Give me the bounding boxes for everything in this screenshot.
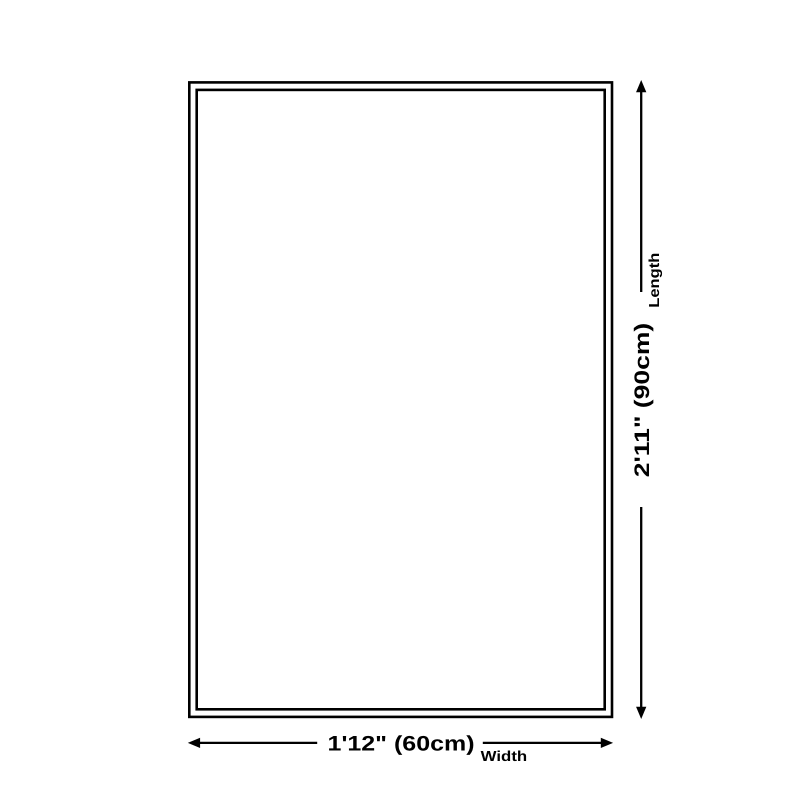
- svg-text:1'12" (60cm): 1'12" (60cm): [328, 733, 475, 756]
- svg-text:Width: Width: [481, 749, 528, 765]
- svg-text:Length: Length: [647, 253, 663, 308]
- svg-text:2'11" (90cm): 2'11" (90cm): [631, 323, 654, 478]
